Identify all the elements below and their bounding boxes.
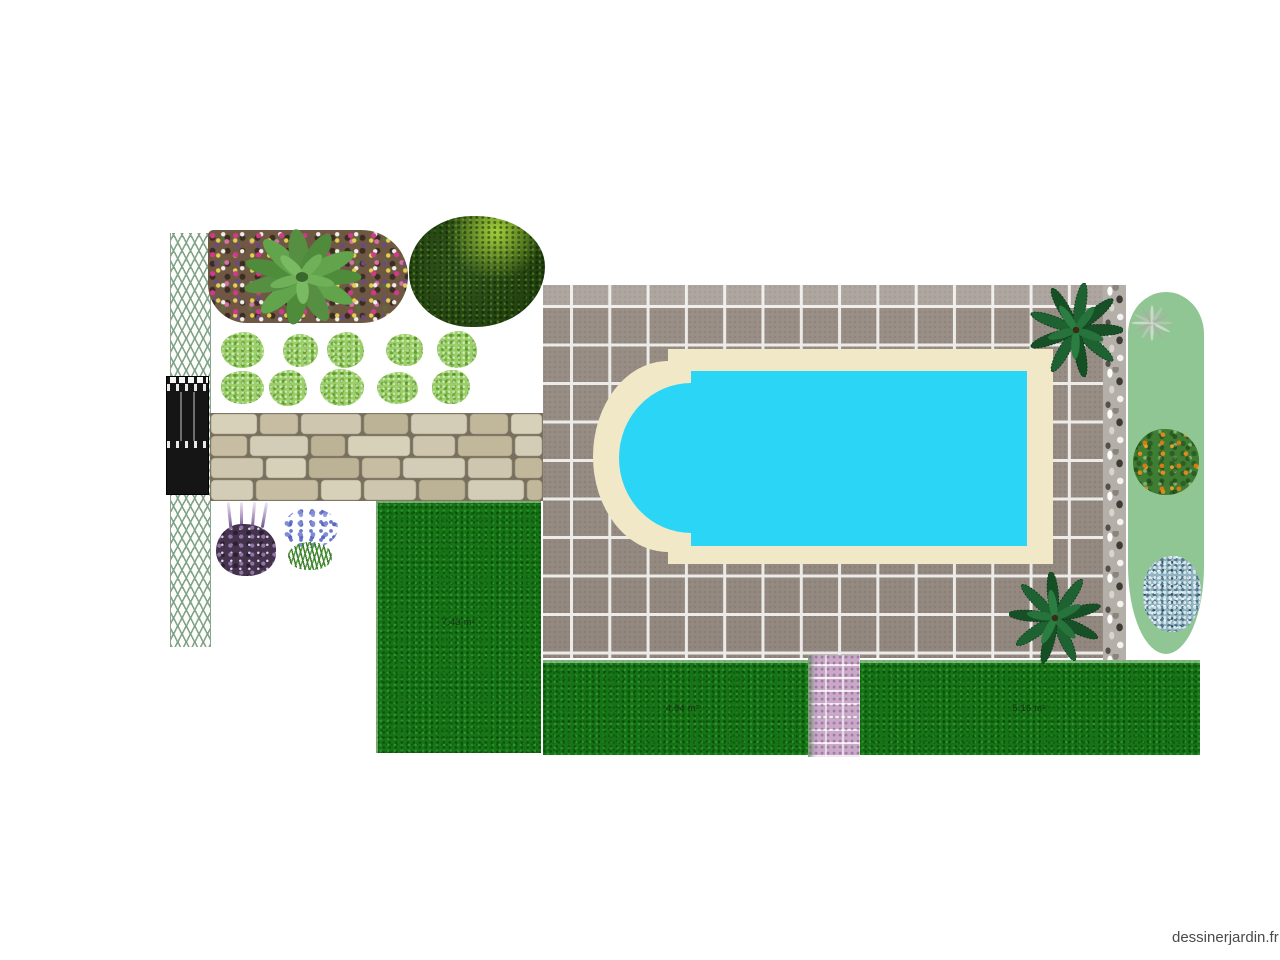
pool-water bbox=[619, 371, 1027, 546]
shrub[interactable] bbox=[283, 334, 318, 367]
lavender-plant[interactable] bbox=[216, 502, 276, 576]
shrub[interactable] bbox=[386, 334, 423, 366]
lavender-foliage bbox=[216, 524, 276, 576]
area-label: 5.16 m² bbox=[1012, 703, 1045, 713]
watermark: dessinerjardin.fr bbox=[1172, 929, 1279, 946]
shrub[interactable] bbox=[269, 370, 307, 406]
agave-plant-icon[interactable] bbox=[1121, 296, 1183, 350]
shrub[interactable] bbox=[221, 332, 264, 368]
lawn-right[interactable]: 5.16 m² bbox=[858, 660, 1200, 755]
orange-tree[interactable] bbox=[1133, 429, 1199, 495]
gravel-path[interactable] bbox=[808, 655, 860, 757]
shrub[interactable] bbox=[327, 332, 364, 368]
agapanthus-plant[interactable] bbox=[283, 508, 338, 572]
garden-plan-canvas: 7.43 m² 4.94 m² 5.16 m² bbox=[0, 0, 1280, 960]
shrub[interactable] bbox=[437, 331, 477, 368]
shrub[interactable] bbox=[221, 371, 264, 404]
garden-gate[interactable] bbox=[167, 377, 208, 494]
gate-mid-rail bbox=[167, 441, 208, 448]
stone-wall[interactable] bbox=[210, 413, 543, 501]
lavender-spike bbox=[261, 502, 268, 528]
shrub[interactable] bbox=[377, 372, 418, 404]
large-leaf-plant-icon[interactable] bbox=[240, 227, 364, 327]
gate-top-rail bbox=[167, 384, 208, 391]
palm-tree-icon[interactable] bbox=[1029, 283, 1123, 377]
swimming-pool[interactable] bbox=[580, 340, 1060, 572]
gate-bar bbox=[180, 392, 182, 441]
boxwood-ball[interactable] bbox=[409, 216, 545, 327]
area-label: 7.43 m² bbox=[442, 617, 475, 627]
agapanthus-leaves bbox=[288, 542, 332, 570]
palm-tree-icon[interactable] bbox=[1009, 572, 1101, 664]
shrub[interactable] bbox=[320, 369, 364, 406]
shrub[interactable] bbox=[432, 370, 470, 404]
area-label: 4.94 m² bbox=[666, 703, 699, 713]
silver-shrub[interactable] bbox=[1143, 556, 1201, 632]
gate-spikes bbox=[167, 377, 208, 383]
lawn-middle[interactable]: 4.94 m² bbox=[543, 660, 808, 755]
gate-bar bbox=[193, 392, 195, 441]
lawn-left[interactable]: 7.43 m² bbox=[376, 501, 541, 753]
lavender-spike bbox=[227, 502, 233, 528]
